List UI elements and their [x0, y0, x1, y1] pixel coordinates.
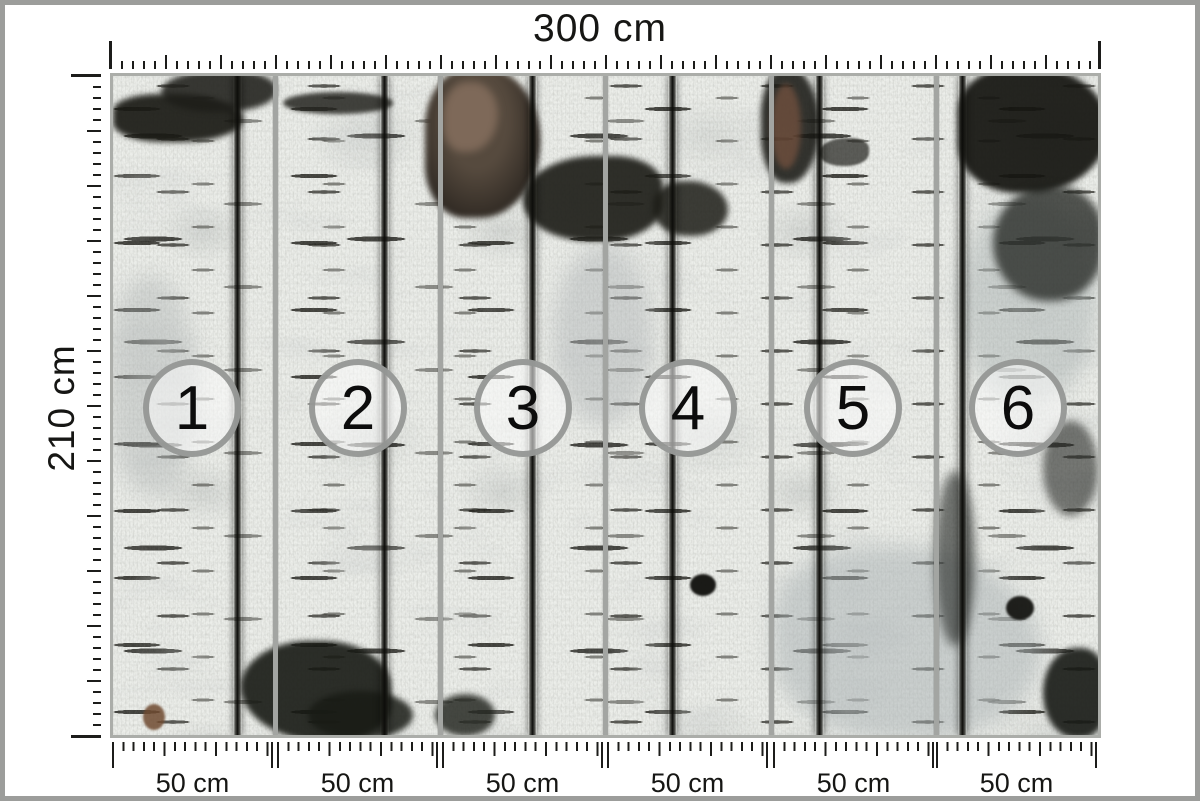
- panel-ruler-small-ticks: [279, 742, 436, 751]
- panel-separator: [769, 76, 774, 735]
- top-ruler-small-ticks: [112, 61, 1098, 69]
- panel-width-ruler: 50 cm: [277, 742, 438, 800]
- panel-ruler-ticks: [277, 742, 438, 768]
- panel-number: 5: [836, 373, 870, 444]
- wallpaper-preview-image: 1 2 3 4 5 6: [110, 73, 1101, 738]
- panel-number: 2: [341, 373, 375, 444]
- panel-ruler-ticks: [773, 742, 934, 768]
- panel-separator: [603, 76, 608, 735]
- panel-ruler-small-ticks: [938, 742, 1095, 751]
- panel-width-label: 50 cm: [442, 768, 603, 799]
- panel-width-label: 50 cm: [277, 768, 438, 799]
- panel-number-badge: 6: [969, 359, 1067, 457]
- panel-ruler-small-ticks: [775, 742, 932, 751]
- panel-width-ruler: 50 cm: [773, 742, 934, 800]
- panel-width-label: 50 cm: [773, 768, 934, 799]
- panel-ruler-small-ticks: [444, 742, 601, 751]
- panel-number-badge: 1: [143, 359, 241, 457]
- panel-number: 6: [1001, 373, 1035, 444]
- panel-number: 3: [506, 373, 540, 444]
- panel-width-ruler: 50 cm: [112, 742, 273, 800]
- left-ruler-small-ticks: [93, 77, 101, 735]
- panel-separator: [934, 76, 939, 735]
- panel-separator: [438, 76, 443, 735]
- panel-number-badge: 5: [804, 359, 902, 457]
- panel-width-label: 50 cm: [607, 768, 768, 799]
- panel-ruler-ticks: [442, 742, 603, 768]
- panel-width-label: 50 cm: [112, 768, 273, 799]
- panel-width-ruler: 50 cm: [936, 742, 1097, 800]
- panel-width-label: 50 cm: [936, 768, 1097, 799]
- panel-number: 1: [175, 373, 209, 444]
- panel-number-badge: 2: [309, 359, 407, 457]
- trunk-shadow-gap: [958, 76, 967, 735]
- left-ruler: [71, 74, 101, 738]
- panel-separator: [273, 76, 278, 735]
- panel-number-badge: 3: [474, 359, 572, 457]
- wallpaper-dimension-diagram: 300 cm 210 cm: [0, 0, 1200, 801]
- panel-ruler-ticks: [936, 742, 1097, 768]
- panel-ruler-ticks: [112, 742, 273, 768]
- panel-number: 4: [671, 373, 705, 444]
- top-ruler: [109, 41, 1101, 69]
- panel-number-badge: 4: [639, 359, 737, 457]
- panel-width-ruler: 50 cm: [442, 742, 603, 800]
- panel-ruler-ticks: [607, 742, 768, 768]
- panel-width-ruler: 50 cm: [607, 742, 768, 800]
- panel-ruler-small-ticks: [609, 742, 766, 751]
- panel-ruler-small-ticks: [114, 742, 271, 751]
